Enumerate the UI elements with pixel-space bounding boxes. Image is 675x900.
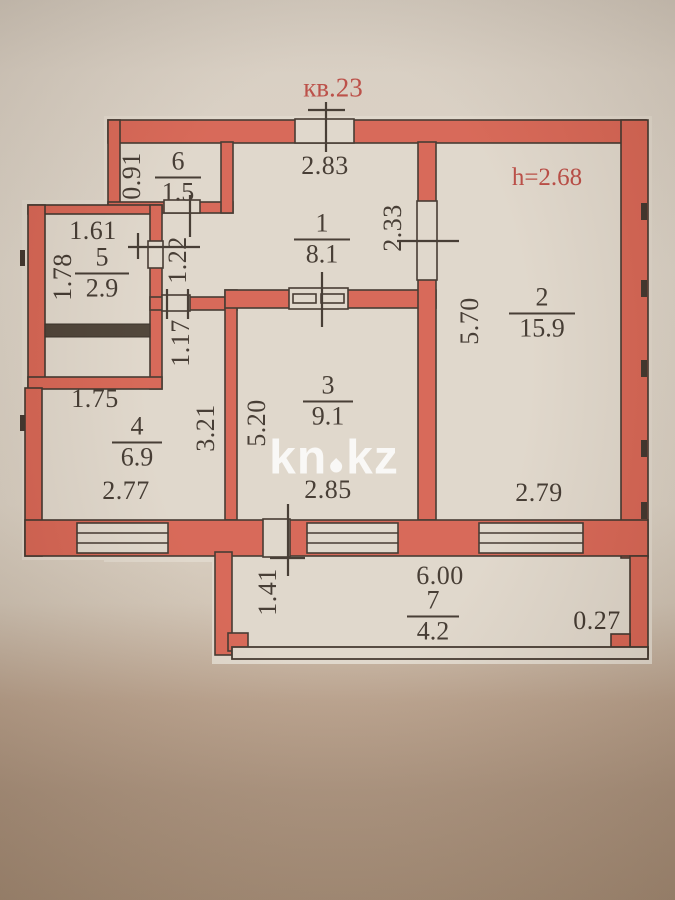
room-4-label: 4 6.9 xyxy=(112,413,162,470)
room2-window xyxy=(479,523,583,553)
dim-room5-left: 1.78 xyxy=(48,253,78,301)
room-1-area: 8.1 xyxy=(294,241,350,268)
room5-door-opening xyxy=(148,241,163,268)
dash-right xyxy=(641,360,647,377)
room-7-number: 7 xyxy=(407,587,459,614)
wall-right xyxy=(621,120,648,558)
wall-balcony-right xyxy=(630,556,648,655)
wall-room2-left xyxy=(418,142,436,520)
room-5-number: 5 xyxy=(75,244,129,271)
dim-balcony-top: 6.00 xyxy=(416,561,464,591)
room-4-area: 6.9 xyxy=(112,444,162,471)
room3-door-jamb-left xyxy=(293,294,316,303)
watermark: kn kz xyxy=(269,431,399,486)
dim-room4-right: 3.21 xyxy=(191,404,221,452)
dim-room4-bottom: 2.77 xyxy=(102,476,150,506)
watermark-left: kn xyxy=(269,431,327,486)
room-1-label: 1 8.1 xyxy=(294,210,350,267)
dash-right xyxy=(641,203,647,220)
room4-window xyxy=(77,523,168,553)
dim-room4-top: 1.75 xyxy=(71,384,119,414)
balcony-parapet xyxy=(232,647,648,659)
room-6-label: 6 1.5 xyxy=(155,148,201,205)
dim-room5-top: 1.61 xyxy=(69,216,117,246)
room-4-number: 4 xyxy=(112,413,162,440)
dim-corridor-upper: 1.22 xyxy=(163,236,193,284)
room-5-area: 2.9 xyxy=(75,275,129,302)
dash-left xyxy=(20,250,25,266)
dim-room3-left: 5.20 xyxy=(242,399,272,447)
room-1-number: 1 xyxy=(294,210,350,237)
ceiling-height-label: h=2.68 xyxy=(512,164,582,192)
wall-top xyxy=(108,120,646,143)
dash-right xyxy=(641,440,647,457)
dim-room2-left: 5.70 xyxy=(455,297,485,345)
dim-balcony-right: 0.27 xyxy=(573,606,621,636)
watermark-right: kz xyxy=(346,431,399,486)
wall-room5-top xyxy=(28,205,162,214)
vent-shaft xyxy=(45,324,150,337)
room-3-label: 3 9.1 xyxy=(303,372,353,429)
dim-room2-bottom: 2.79 xyxy=(515,478,563,508)
dim-room6-left: 0.91 xyxy=(117,152,147,200)
entrance-door-opening xyxy=(295,119,354,143)
dash-right xyxy=(641,280,647,297)
room-3-area: 9.1 xyxy=(303,403,353,430)
apartment-number-label: кв.23 xyxy=(303,73,363,104)
dash-left xyxy=(20,415,25,431)
dim-top-entry: 2.83 xyxy=(301,151,349,181)
dim-room2-door: 2.33 xyxy=(378,204,408,252)
windows xyxy=(77,523,583,553)
wall-room3-left xyxy=(225,290,237,520)
room-2-number: 2 xyxy=(509,284,575,311)
room3-window xyxy=(307,523,398,553)
wall-room6-right xyxy=(221,142,233,213)
wall-left-middle xyxy=(28,205,45,388)
room3-door-jamb-right xyxy=(321,294,344,303)
room-2-label: 2 15.9 xyxy=(509,284,575,341)
room-5-label: 5 2.9 xyxy=(75,244,129,301)
floor-plan-photo: кв.23 h=2.68 1 8.1 2 15.9 3 9.1 4 6.9 5 … xyxy=(0,0,675,900)
watermark-dot-icon xyxy=(328,458,345,475)
dim-balcony-left: 1.41 xyxy=(253,568,283,616)
dim-corridor-lower: 1.17 xyxy=(166,319,196,367)
balcony-door-opening xyxy=(263,519,290,557)
dash-right xyxy=(641,502,647,519)
room-6-number: 6 xyxy=(155,148,201,175)
room-7-area: 4.2 xyxy=(407,618,459,645)
room-6-area: 1.5 xyxy=(155,179,201,206)
room-2-area: 15.9 xyxy=(509,315,575,342)
room-7-label: 7 4.2 xyxy=(407,587,459,644)
room-3-number: 3 xyxy=(303,372,353,399)
